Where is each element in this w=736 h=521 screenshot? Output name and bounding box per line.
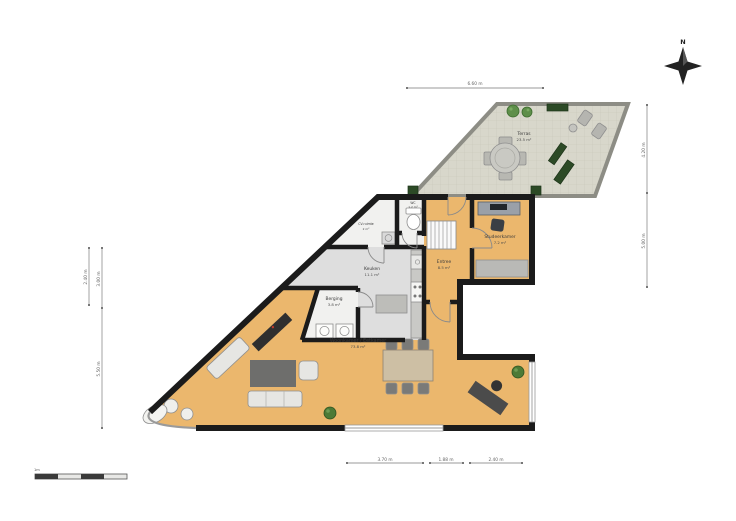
kitchen-island bbox=[376, 295, 407, 313]
study-closet bbox=[476, 260, 528, 277]
dim-top: 6.60 m bbox=[467, 81, 482, 87]
scale-bar: 1m bbox=[34, 468, 127, 479]
room-label-terras-area: 23.5 m² bbox=[517, 137, 532, 142]
cv-boiler-icon bbox=[382, 232, 395, 244]
sofa bbox=[248, 391, 302, 407]
stairs bbox=[427, 221, 456, 249]
room-label-studeerkamer-area: 7.2 m² bbox=[494, 240, 507, 245]
dim-bottom-left: 3.70 m bbox=[377, 457, 392, 463]
dining-set bbox=[383, 339, 433, 394]
room-label-wc-area: 1.2 m² bbox=[408, 205, 418, 209]
room-label-woonkamer-area: 73.8 m² bbox=[351, 344, 366, 349]
floor-plan-page: Terras 23.5 m² bbox=[0, 0, 736, 521]
compass-rose: N bbox=[664, 38, 702, 85]
dim-right-lower: 5.00 m bbox=[641, 233, 647, 248]
study-desk bbox=[478, 202, 520, 215]
room-label-cv-name: CV-ruimte bbox=[358, 222, 374, 226]
room-label-berging-area: 3.8 m² bbox=[328, 302, 341, 307]
washer-icon bbox=[316, 324, 333, 338]
dim-right-upper: 4.20 m bbox=[641, 142, 647, 157]
rug bbox=[250, 360, 296, 387]
dim-left-inner-lower: 5.50 m bbox=[96, 361, 102, 376]
dim-bottom-middle: 1.88 m bbox=[438, 457, 453, 463]
toilet-icon bbox=[406, 208, 421, 230]
dim-left-inner-upper: 3.00 m bbox=[96, 271, 102, 286]
room-label-entree-area: 8.5 m² bbox=[438, 265, 451, 270]
scale-bar-label: 1m bbox=[34, 468, 40, 472]
floor-plan-canvas: Terras 23.5 m² bbox=[0, 0, 736, 521]
dim-left-outer: 2.40 m bbox=[83, 269, 89, 284]
room-label-cv-area: 2 m² bbox=[363, 227, 370, 231]
room-label-keuken-area: 11.1 m² bbox=[365, 272, 380, 277]
dim-bottom-right: 2.40 m bbox=[488, 457, 503, 463]
armchair bbox=[299, 361, 318, 380]
dryer-icon bbox=[336, 324, 353, 338]
terrace: Terras 23.5 m² bbox=[408, 104, 628, 196]
study-chair bbox=[490, 218, 505, 232]
compass-north-label: N bbox=[680, 38, 685, 46]
